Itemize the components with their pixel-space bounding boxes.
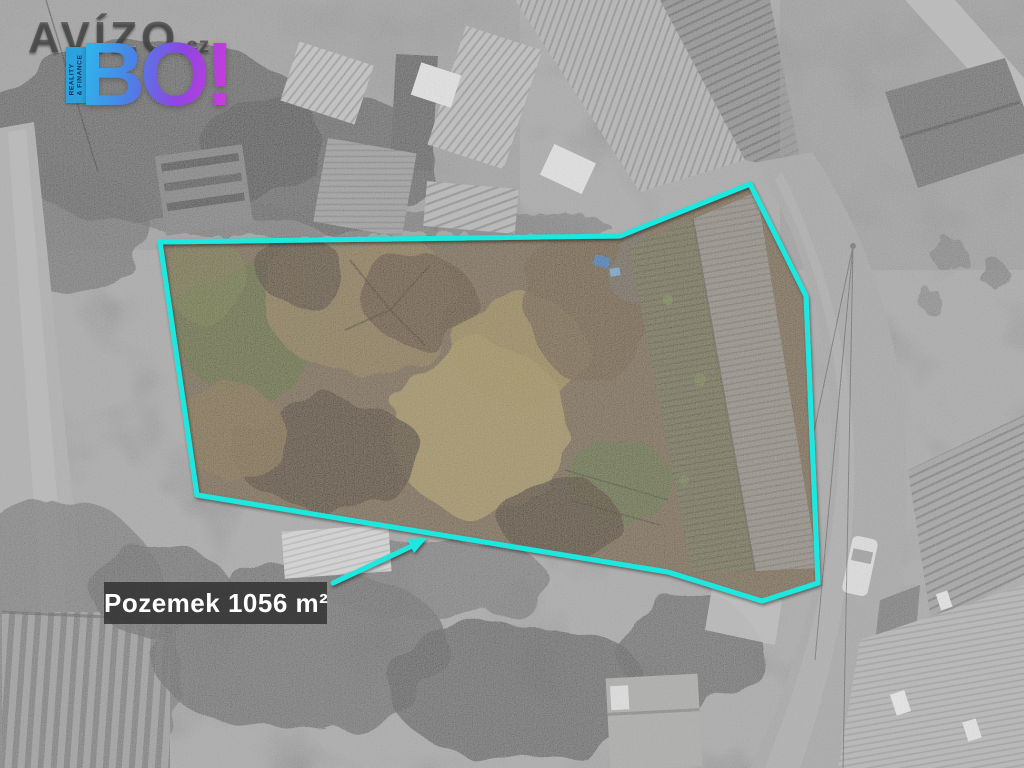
brand-badge: BO! [80, 30, 230, 120]
parcel-area-label: Pozemek 1056 m² [104, 582, 327, 624]
brand-logo: AVÍZO.cz REALITY & FINANCE BO! [24, 14, 254, 124]
